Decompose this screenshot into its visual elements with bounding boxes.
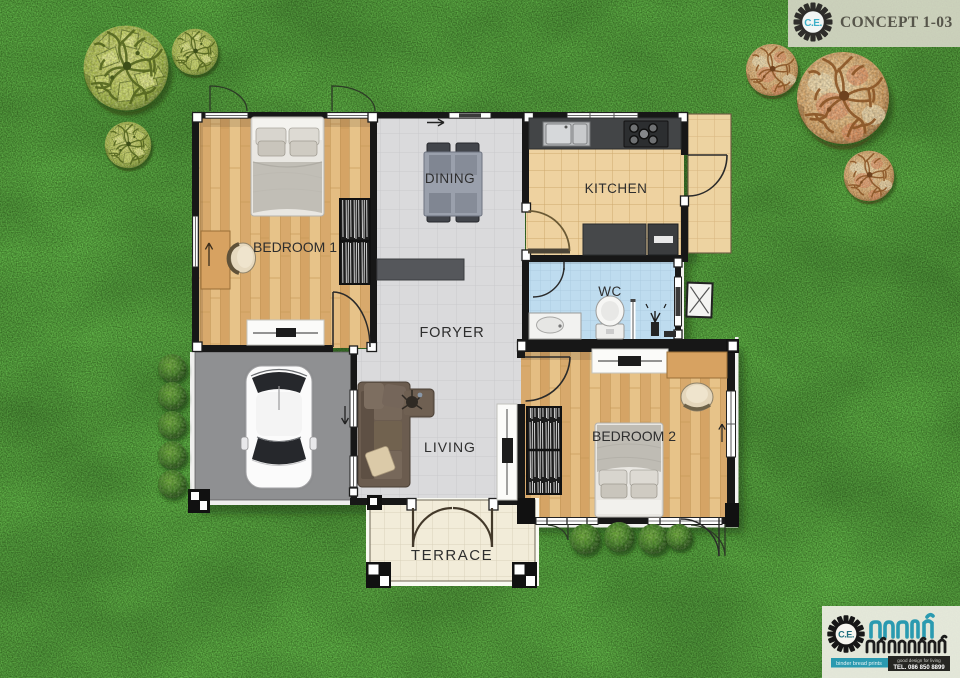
svg-text:KITCHEN: KITCHEN [585,181,648,196]
svg-text:LIVING: LIVING [424,439,476,455]
svg-text:CONCEPT 1-03: CONCEPT 1-03 [840,14,953,31]
svg-text:BEDROOM 2: BEDROOM 2 [592,428,676,444]
svg-text:C.E.: C.E. [838,629,854,639]
svg-text:DINING: DINING [425,171,475,186]
svg-text:TERRACE: TERRACE [411,547,493,564]
svg-text:WC: WC [598,284,622,299]
svg-text:TEL. 086 850 8899: TEL. 086 850 8899 [893,665,945,671]
svg-text:good design for living: good design for living [897,658,941,663]
svg-text:FORYER: FORYER [420,325,485,341]
svg-text:C.E.: C.E. [804,18,822,29]
svg-text:BEDROOM 1: BEDROOM 1 [253,239,337,255]
svg-text:binder bread prints: binder bread prints [836,661,882,667]
